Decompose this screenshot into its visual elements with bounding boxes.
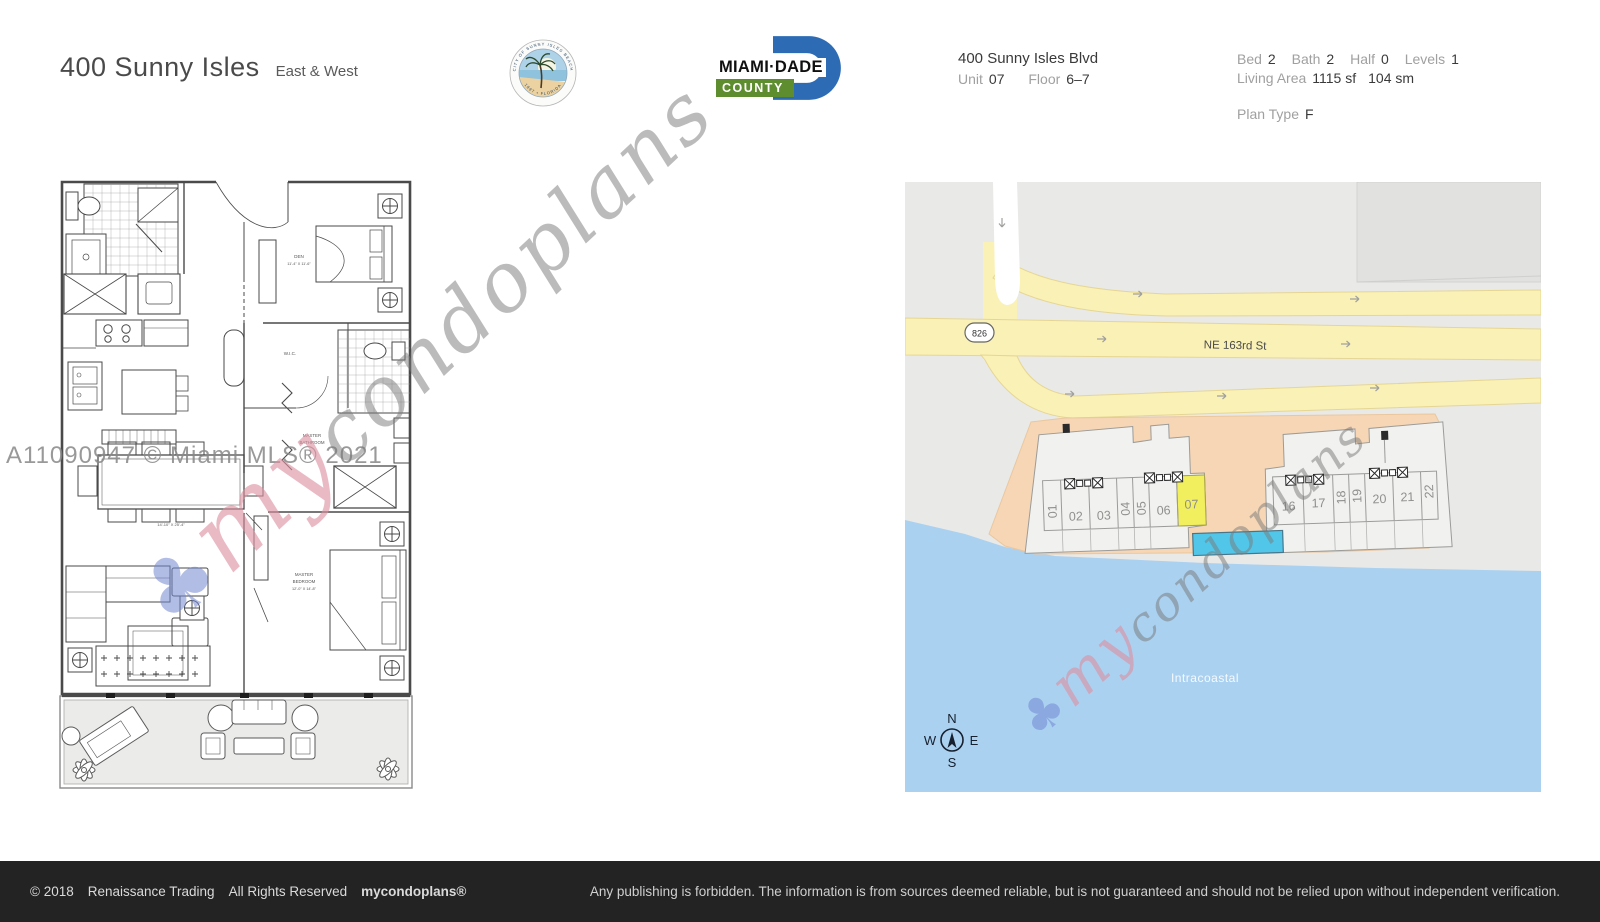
unit-label: 05	[1134, 501, 1148, 515]
unit-label: 22	[1422, 484, 1436, 498]
footer-company: Renaissance Trading	[88, 884, 215, 899]
sunny-isles-beach-seal-icon: CITY OF SUNNY ISLES BEACH 1997 • FLORIDA	[509, 39, 577, 107]
master-bed-label-2: BEDROOM	[293, 579, 316, 584]
county-wordmark: COUNTY	[716, 79, 794, 97]
balcony	[60, 693, 412, 788]
miami-dade-logo: MIAMI·DADE COUNTY	[716, 36, 876, 102]
west-building: 01 02 03 04 05 06 07	[1021, 419, 1207, 553]
floor-label: Floor	[1028, 71, 1060, 87]
half-label: Half	[1350, 51, 1375, 67]
footer-bar: © 2018Renaissance TradingAll Rights Rese…	[0, 861, 1600, 922]
address-line: 400 Sunny Isles Blvd	[958, 50, 1110, 67]
page-subtitle: East & West	[276, 63, 358, 80]
plant-icon	[73, 759, 95, 781]
bed-value: 2	[1268, 51, 1276, 67]
unit-label: 02	[1069, 509, 1083, 523]
map-local-road	[993, 182, 1020, 305]
wic-label: W.I.C.	[284, 351, 297, 356]
stats-block: Bed2 Bath2 Half0 Levels1 Living Area1115…	[1237, 50, 1471, 124]
unit-label: 18	[1334, 490, 1348, 504]
footer-rights: All Rights Reserved	[229, 884, 348, 899]
compass-w: W	[924, 733, 937, 748]
bed-label: Bed	[1237, 51, 1262, 67]
route-badge-text: 826	[972, 329, 987, 339]
unit-label: 19	[1350, 489, 1364, 503]
floor-value: 6–7	[1066, 71, 1089, 87]
page-title: 400 Sunny Isles	[60, 52, 260, 83]
den	[259, 194, 402, 312]
master-bed-label-1: MASTER	[295, 572, 313, 577]
unit-label: 20	[1372, 492, 1386, 506]
compass-e: E	[970, 733, 979, 748]
plan-type-label: Plan Type	[1237, 106, 1299, 122]
route-badge: 826	[965, 323, 994, 342]
laundry-closet	[64, 274, 180, 314]
unit-label: 01	[1045, 504, 1059, 518]
unit-label: 21	[1400, 490, 1414, 504]
footer-copyright: © 2018	[30, 884, 74, 899]
unit-label: Unit	[958, 71, 983, 87]
bath-label: Bath	[1292, 51, 1321, 67]
bath-value: 2	[1326, 51, 1334, 67]
compass-s: S	[948, 755, 957, 770]
levels-label: Levels	[1405, 51, 1445, 67]
unit-label: 03	[1097, 508, 1111, 522]
den-label: DEN	[294, 254, 304, 259]
living-area-label: Living Area	[1237, 70, 1306, 86]
unit-label: 04	[1118, 502, 1132, 516]
water-label: Intracoastal	[1171, 671, 1239, 685]
unit-label: 07	[1184, 497, 1198, 511]
unit-value: 07	[989, 71, 1005, 87]
footer-disclaimer: Any publishing is forbidden. The informa…	[590, 884, 1560, 899]
address-block: 400 Sunny Isles Blvd Unit07 Floor6–7	[958, 50, 1110, 87]
levels-value: 1	[1451, 51, 1459, 67]
footer-copyright-block: © 2018Renaissance TradingAll Rights Rese…	[30, 883, 480, 901]
living-area-sm: 104 sm	[1368, 70, 1414, 86]
den-dim: 11'-4" X 11'-6"	[287, 262, 311, 266]
plant-icon	[377, 758, 399, 780]
header-title-block: 400 Sunny Isles East & West	[60, 52, 358, 83]
footer-brand: mycondoplans®	[361, 884, 466, 899]
miami-dade-wordmark: MIAMI·DADE	[716, 58, 826, 77]
bathroom-2	[66, 182, 184, 280]
unit-label: 06	[1156, 503, 1170, 517]
map-building-block	[1357, 182, 1541, 282]
living-area-sf: 1115 sf	[1312, 70, 1356, 86]
site-map: 826 NE 163rd St 01 02 03 04 05 06 07	[905, 182, 1541, 792]
kitchen	[62, 320, 244, 414]
master-bed-dim: 12'-0" X 14'-8"	[292, 587, 317, 591]
street-label: NE 163rd St	[1204, 339, 1268, 352]
half-value: 0	[1381, 51, 1389, 67]
compass-n: N	[947, 711, 956, 726]
plan-type-value: F	[1305, 106, 1314, 122]
